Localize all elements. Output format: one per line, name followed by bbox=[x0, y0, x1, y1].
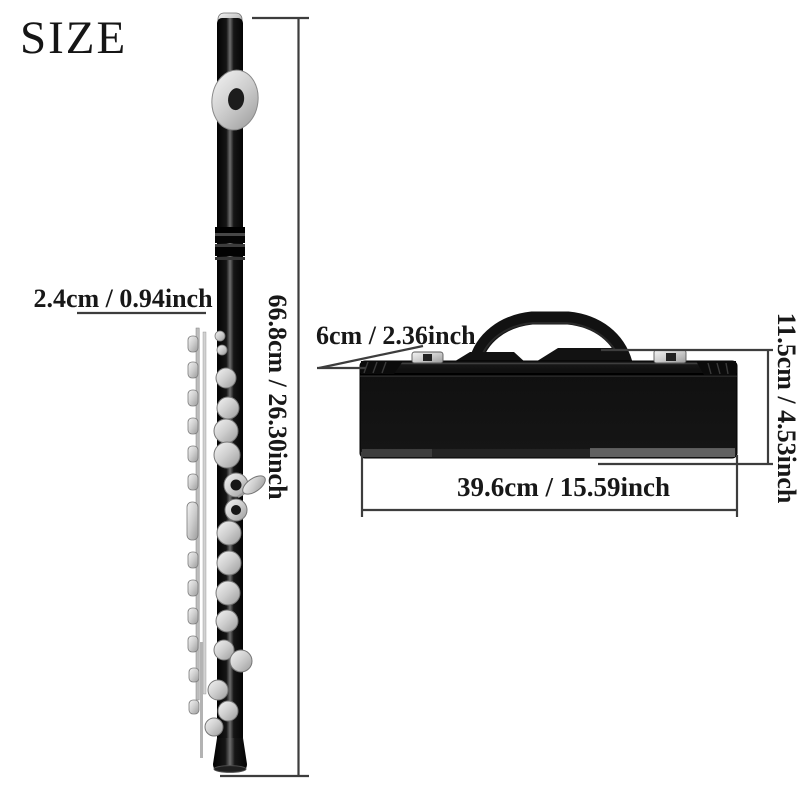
case-length-label: 39.6cm / 15.59inch bbox=[375, 473, 752, 501]
case-bottom-strip-left bbox=[362, 449, 432, 457]
size-title: SIZE bbox=[20, 14, 127, 62]
case-latch-right bbox=[654, 350, 686, 363]
flute-diameter-label: 2.4cm / 0.94inch bbox=[30, 285, 216, 313]
case-height-label: 11.5cm / 4.53inch bbox=[772, 308, 800, 508]
case-body bbox=[360, 361, 737, 458]
flute-key-rods bbox=[187, 328, 206, 758]
flute-foot-end bbox=[213, 738, 247, 772]
illustration-layer bbox=[0, 0, 800, 800]
case-bottom-strip-right bbox=[590, 448, 735, 457]
product-size-diagram: SIZE 2.4cm / 0.94inch 66.8cm / 26.30inch… bbox=[0, 0, 800, 800]
flute-lip-plate bbox=[209, 67, 262, 132]
flute-length-label: 66.8cm / 26.30inch bbox=[263, 282, 291, 512]
flute-illustration bbox=[187, 13, 268, 772]
case-depth-label: 6cm / 2.36inch bbox=[316, 322, 476, 350]
case-latch-left bbox=[412, 352, 443, 363]
